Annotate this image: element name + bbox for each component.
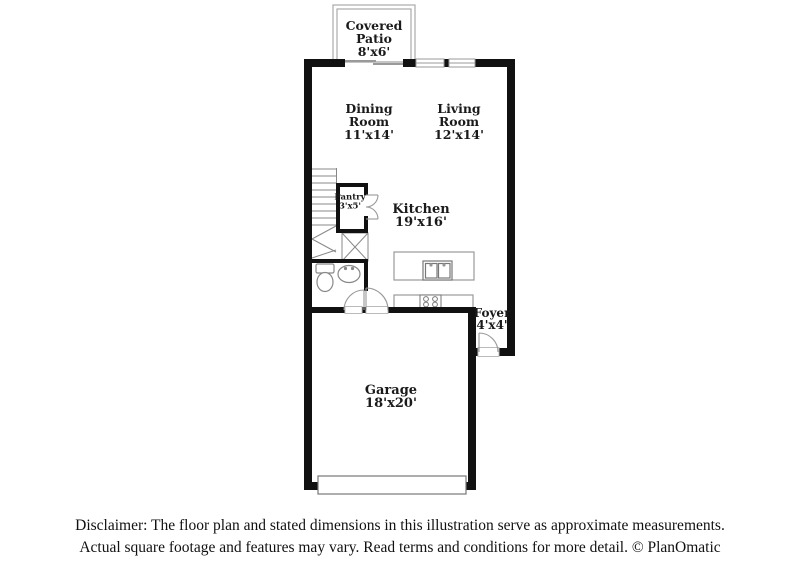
- room-label-pantry: Pantry 3'x5': [328, 193, 372, 210]
- room-dims: 19'x16': [381, 216, 461, 229]
- room-label-dining-room: Dining Room 11'x14': [338, 103, 400, 141]
- room-name: Garage: [359, 384, 423, 397]
- room-dims: 18'x20': [359, 397, 423, 410]
- toilet-icon: [316, 264, 334, 292]
- room-dims: 4'x4': [464, 319, 520, 331]
- room-label-covered-patio: Covered Patio 8'x6': [335, 20, 413, 58]
- floor-plan-drawing: [0, 0, 800, 582]
- closet-icon: [342, 233, 368, 261]
- floor-plan-page: Covered Patio 8'x6' Dining Room 11'x14' …: [0, 0, 800, 582]
- room-dims: 3'x5': [328, 202, 372, 211]
- room-dims: 8'x6': [335, 45, 413, 58]
- room-dims: 11'x14': [338, 128, 400, 141]
- room-dims: 12'x14': [428, 128, 490, 141]
- room-label-kitchen: Kitchen 19'x16': [381, 203, 461, 230]
- room-name: Covered Patio: [335, 20, 413, 46]
- room-name: Kitchen: [381, 203, 461, 216]
- garage-door-icon: [318, 476, 466, 494]
- room-label-garage: Garage 18'x20': [359, 384, 423, 411]
- stove-icon: [420, 295, 441, 308]
- disclaimer-text: Disclaimer: The floor plan and stated di…: [0, 515, 800, 559]
- disclaimer-line-2: Actual square footage and features may v…: [0, 537, 800, 559]
- disclaimer-line-1: Disclaimer: The floor plan and stated di…: [0, 515, 800, 537]
- stairs-icon: [312, 168, 337, 258]
- room-name: Dining Room: [338, 103, 400, 129]
- bathroom-sink-icon: [338, 266, 360, 283]
- room-name: Living Room: [428, 103, 490, 129]
- room-label-foyer: Foyer 4'x4': [464, 307, 520, 331]
- kitchen-island-icon: [394, 252, 474, 280]
- room-label-living-room: Living Room 12'x14': [428, 103, 490, 141]
